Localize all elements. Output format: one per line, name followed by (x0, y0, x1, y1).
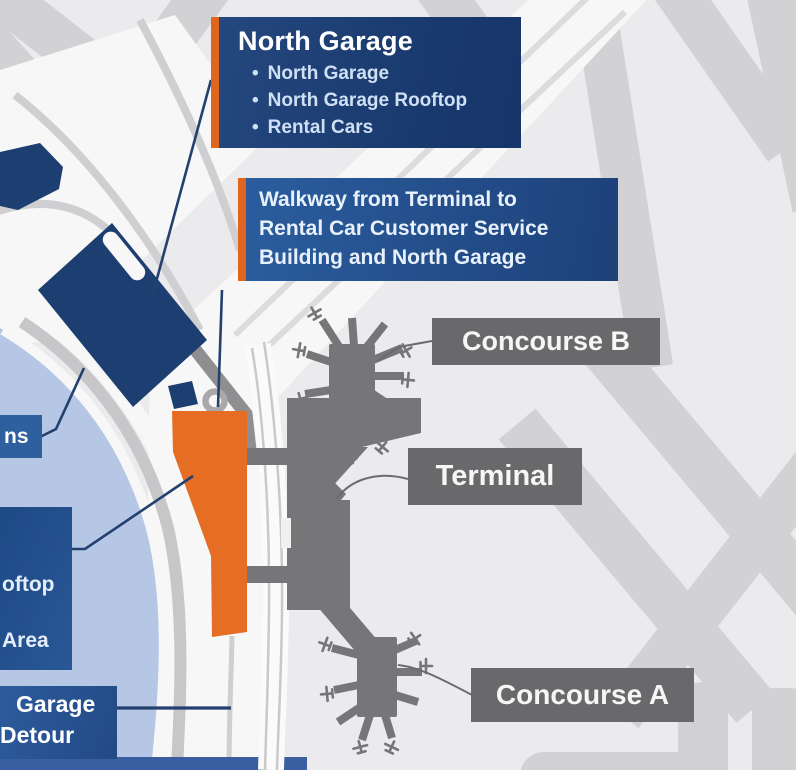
bullet-icon: • (252, 63, 259, 84)
north-garage-callout-title: North Garage (238, 26, 521, 57)
north-garage-callout: North Garage •North Garage •North Garage… (211, 17, 521, 148)
list-item: •Rental Cars (252, 114, 521, 141)
walkway-callout-line: Walkway from Terminal to (259, 185, 618, 214)
terminal-indent (281, 518, 291, 548)
walkway-callout-line: Building and North Garage (259, 243, 618, 272)
leader-terminal (337, 476, 408, 498)
list-item-label: North Garage (268, 63, 389, 84)
concourse-b-label: Concourse B (432, 318, 660, 365)
concourse-a-label: Concourse A (471, 668, 694, 722)
airplane-icon (352, 739, 368, 754)
airplane-icon (317, 636, 333, 653)
bullet-icon: • (252, 90, 259, 111)
list-item-label: Rental Cars (268, 117, 374, 138)
side-road (229, 636, 232, 770)
callout-accent-bar (211, 17, 219, 148)
airplane-icon (320, 686, 333, 701)
left-edge-callout-line: oftop (2, 573, 54, 597)
left-edge-callout-middle: oftop Area (0, 507, 72, 670)
list-item: •North Garage Rooftop (252, 87, 521, 114)
airplane-icon (383, 739, 401, 755)
list-item: •North Garage (252, 60, 521, 87)
garage-detour-line: Detour (0, 722, 74, 749)
left-edge-callout-top: ns (0, 415, 42, 458)
bullet-icon: • (252, 117, 259, 138)
walkway-callout-line: Rental Car Customer Service (259, 214, 618, 243)
garage-detour-line: Garage (16, 691, 95, 718)
terminal-label: Terminal (408, 448, 582, 505)
callout-accent-bar (238, 178, 246, 281)
north-garage-list: •North Garage •North Garage Rooftop •Ren… (238, 60, 521, 141)
airplane-icon (402, 372, 415, 387)
left-edge-callout-line: Area (2, 629, 49, 653)
bridge-lower (247, 566, 287, 583)
bridge-upper (247, 448, 287, 465)
concourse-b-building (329, 344, 375, 418)
list-item-label: North Garage Rooftop (268, 90, 468, 111)
airport-map: North Garage •North Garage •North Garage… (0, 0, 796, 770)
walkway-callout: Walkway from Terminal to Rental Car Cust… (238, 178, 618, 281)
garage-detour-callout: Garage Detour (0, 686, 117, 759)
